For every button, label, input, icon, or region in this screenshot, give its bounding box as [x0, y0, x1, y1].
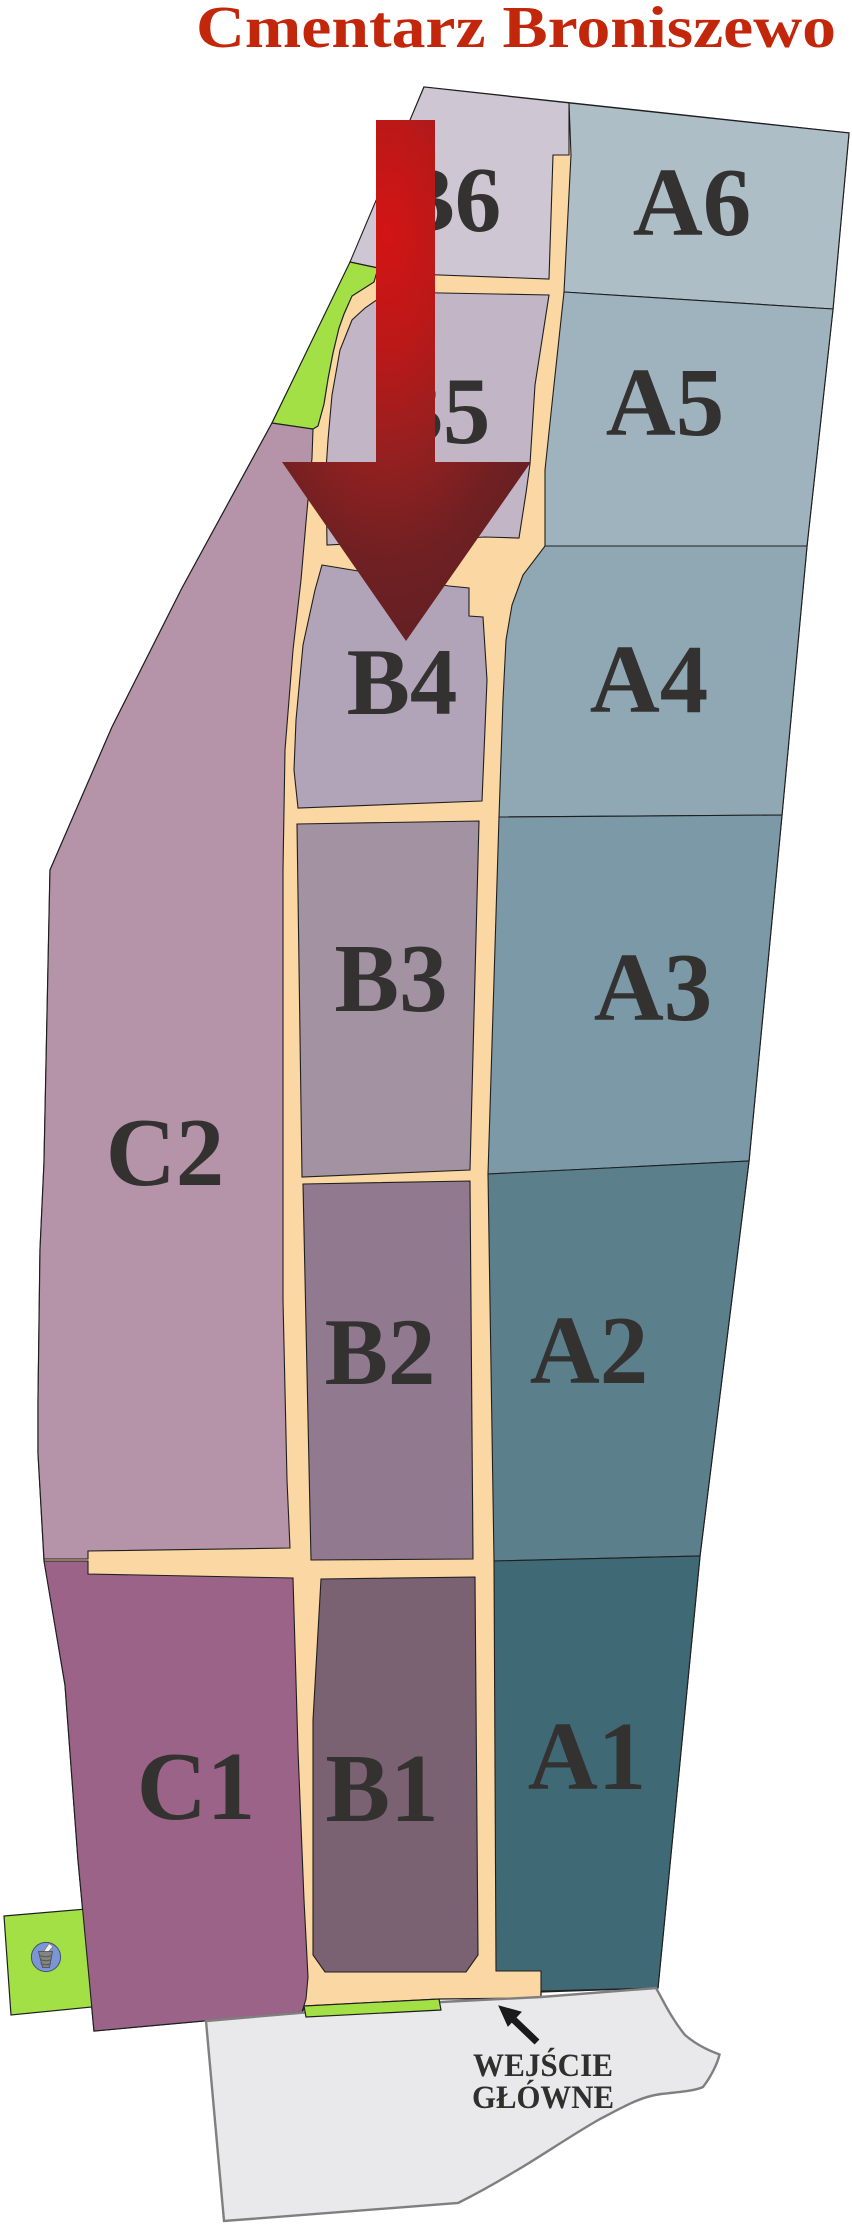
- svg-text:A5: A5: [606, 349, 725, 456]
- svg-text:B1: B1: [325, 1735, 438, 1842]
- svg-text:A1: A1: [528, 1703, 647, 1810]
- svg-text:Cmentarz Broniszewo: Cmentarz Broniszewo: [196, 0, 836, 60]
- svg-text:A2: A2: [530, 1297, 649, 1404]
- svg-text:A6: A6: [633, 149, 752, 256]
- svg-text:B3: B3: [334, 925, 447, 1032]
- svg-text:C1: C1: [137, 1733, 256, 1840]
- svg-text:A4: A4: [590, 626, 709, 733]
- svg-text:B4: B4: [347, 629, 458, 735]
- svg-text:GŁÓWNE: GŁÓWNE: [472, 2078, 614, 2116]
- svg-text:WEJŚCIE: WEJŚCIE: [473, 2046, 613, 2084]
- svg-text:A3: A3: [594, 934, 713, 1041]
- svg-text:C2: C2: [106, 1099, 225, 1206]
- svg-text:B2: B2: [325, 1299, 436, 1405]
